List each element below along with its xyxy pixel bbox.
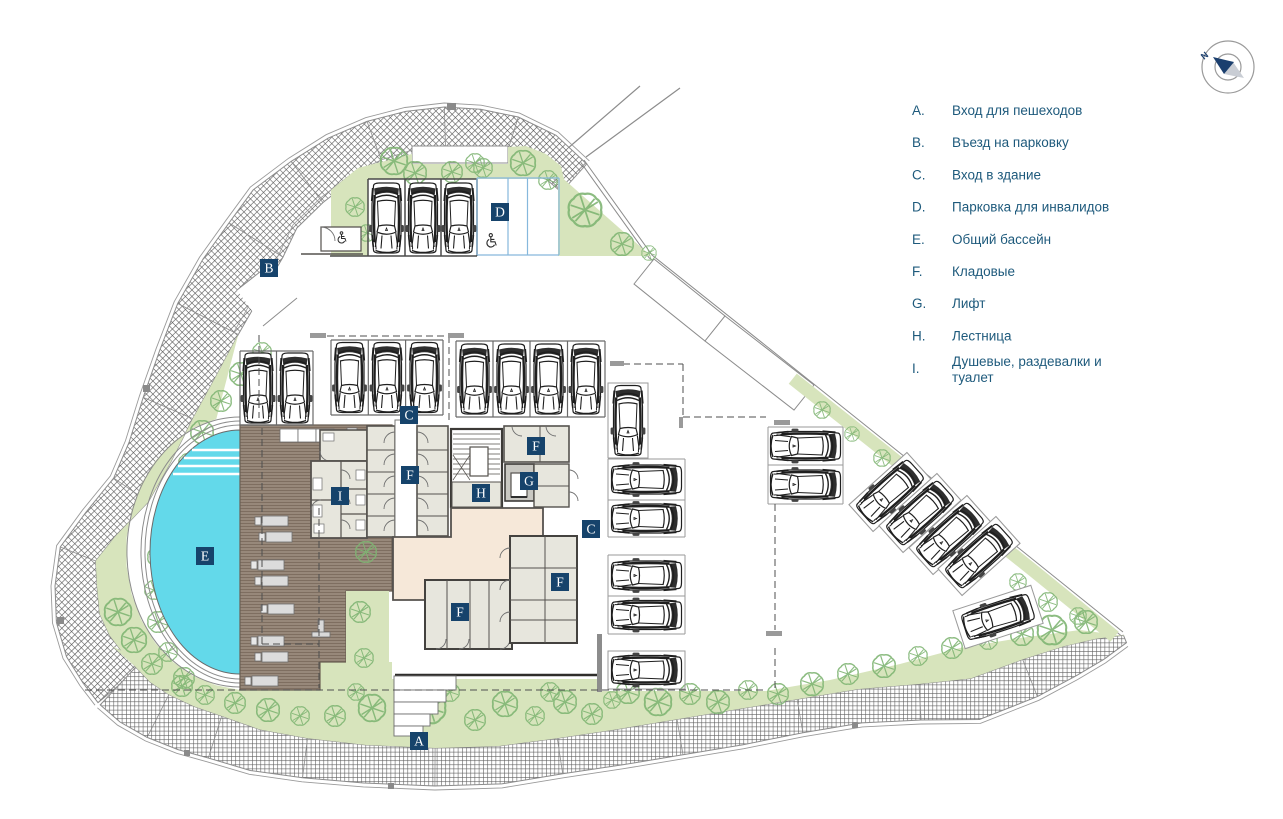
svg-text:F.: F. [912, 264, 923, 279]
svg-text:B: B [264, 261, 273, 276]
svg-text:H: H [476, 486, 486, 501]
svg-text:G.: G. [912, 296, 926, 311]
svg-text:I.: I. [912, 361, 920, 376]
svg-text:D.: D. [912, 200, 926, 215]
svg-text:Душевые, раздевалки и: Душевые, раздевалки и [952, 354, 1102, 369]
svg-text:E.: E. [912, 232, 925, 247]
svg-text:F: F [556, 575, 564, 590]
svg-text:B.: B. [912, 135, 925, 150]
svg-text:Лифт: Лифт [952, 296, 985, 311]
svg-text:C: C [586, 522, 595, 537]
svg-text:F: F [456, 605, 464, 620]
svg-text:Вход в здание: Вход в здание [952, 167, 1041, 182]
svg-text:Парковка для инвалидов: Парковка для инвалидов [952, 200, 1109, 215]
svg-text:F: F [406, 468, 414, 483]
svg-text:C.: C. [912, 167, 926, 182]
svg-text:C: C [404, 408, 413, 423]
svg-text:A.: A. [912, 103, 925, 118]
svg-text:E: E [201, 549, 209, 564]
svg-text:F: F [532, 439, 540, 454]
svg-text:A: A [414, 734, 424, 749]
svg-text:Вход для пешеходов: Вход для пешеходов [952, 103, 1082, 118]
svg-text:G: G [524, 474, 534, 489]
svg-text:Кладовые: Кладовые [952, 264, 1015, 279]
svg-text:H.: H. [912, 328, 926, 343]
svg-text:D: D [495, 205, 505, 220]
svg-text:Общий бассейн: Общий бассейн [952, 232, 1051, 247]
svg-text:туалет: туалет [952, 370, 994, 385]
svg-text:Въезд на парковку: Въезд на парковку [952, 135, 1069, 150]
svg-text:I: I [338, 489, 343, 504]
svg-text:Лестница: Лестница [952, 328, 1012, 343]
